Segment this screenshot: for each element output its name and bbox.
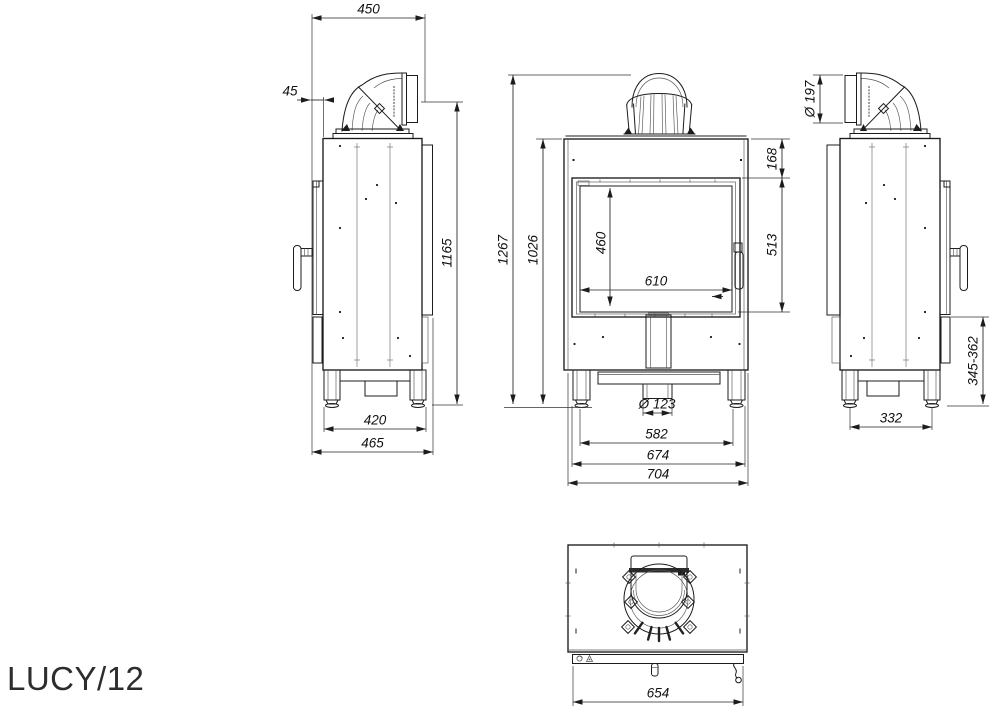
door-handle <box>294 246 313 291</box>
rear-heat-shield <box>422 145 433 315</box>
adjustable-foot <box>730 400 743 408</box>
dim-168: 168 <box>742 139 790 178</box>
model-title: LUCY/12 <box>7 660 144 698</box>
dim-45-label: 45 <box>282 84 298 99</box>
release-cord <box>734 664 742 683</box>
dim-704-label: 704 <box>647 467 670 482</box>
leg <box>324 370 340 400</box>
door-edge <box>313 181 323 315</box>
dim-513-label: 513 <box>765 233 780 256</box>
dim-610-label: 610 <box>645 274 668 289</box>
dim-460-label: 460 <box>594 231 609 254</box>
base-and-legs <box>324 370 426 408</box>
damper-pin <box>635 623 683 641</box>
top-view: 654 <box>566 543 750 707</box>
dim-420: 420 <box>324 407 426 432</box>
dim-582: 582 <box>580 409 733 446</box>
ash-drawer <box>646 315 671 368</box>
dim-197: Ø 197 <box>803 75 844 123</box>
dim-1026-label: 1026 <box>526 234 541 265</box>
dim-420-label: 420 <box>364 413 387 428</box>
mount-clamp-icon <box>624 128 632 135</box>
top-plate-outline <box>568 545 747 652</box>
door-edge <box>940 181 950 315</box>
dim-460: 460 <box>594 188 611 306</box>
front-view: 1267 1026 168 513 460 610 Ø 123 582 <box>496 74 791 487</box>
dim-610: 610 <box>580 274 732 297</box>
dim-345-362-label: 345-362 <box>966 336 981 386</box>
right-side-view: Ø 197 332 345-362 <box>803 73 990 430</box>
left-side-view: 450 45 1165 420 465 <box>282 2 463 456</box>
dim-345-362: 345-362 <box>947 317 989 406</box>
flue-collar <box>624 74 695 135</box>
dim-450: 450 <box>312 2 425 456</box>
adjustable-foot <box>575 400 588 408</box>
flue-elbow <box>845 73 927 134</box>
adjustable-foot <box>844 400 857 408</box>
flue-opening <box>622 556 697 641</box>
dim-123-label: Ø 123 <box>638 397 676 412</box>
adjustable-foot <box>412 400 425 408</box>
leg <box>924 370 940 400</box>
ash-drawer <box>365 381 397 396</box>
dim-1267: 1267 <box>496 75 632 404</box>
dim-674-label: 674 <box>647 448 670 463</box>
dim-197-label: Ø 197 <box>803 80 818 118</box>
stove-body <box>564 136 748 370</box>
dim-332-label: 332 <box>880 411 903 426</box>
dim-123: Ø 123 <box>638 397 676 417</box>
dim-465: 465 <box>312 318 433 455</box>
front-edge-strip <box>568 650 747 683</box>
top-plate <box>333 134 413 139</box>
dim-450-label: 450 <box>357 2 380 17</box>
adjustable-foot <box>326 400 339 408</box>
drawing-sheet: 450 45 1165 420 465 <box>0 0 999 715</box>
dim-1026: 1026 <box>526 139 563 404</box>
rear-heat-shield <box>827 145 840 315</box>
dim-1267-label: 1267 <box>496 234 511 265</box>
dim-582-label: 582 <box>645 427 668 442</box>
ash-drawer <box>867 381 899 396</box>
dim-168-label: 168 <box>765 147 780 170</box>
dim-45: 45 <box>282 84 334 138</box>
collar-ring-inner <box>630 570 688 628</box>
flue-elbow <box>336 73 418 134</box>
leg <box>728 370 745 400</box>
lucy12-technical-drawing: 450 45 1165 420 465 <box>0 0 999 715</box>
dim-654-label: 654 <box>647 686 670 701</box>
stove-body <box>827 134 968 371</box>
dim-1165-label: 1165 <box>440 238 455 268</box>
stove-body <box>294 134 433 371</box>
leg <box>410 370 426 400</box>
leg <box>573 370 590 400</box>
bolt-lug <box>622 571 697 634</box>
adjustable-foot <box>926 400 939 408</box>
dim-332: 332 <box>850 408 932 430</box>
base-and-legs <box>842 370 940 408</box>
door-handle <box>950 246 968 291</box>
top-plate <box>850 134 930 139</box>
leg <box>842 370 858 400</box>
dim-513: 513 <box>738 178 790 312</box>
base-and-legs <box>504 370 745 408</box>
lifting-tab <box>652 664 659 677</box>
dim-465-label: 465 <box>361 436 384 451</box>
mount-clamp-icon <box>687 128 695 135</box>
dim-1165: 1165 <box>421 102 463 405</box>
safety-marking-icon <box>577 656 593 662</box>
